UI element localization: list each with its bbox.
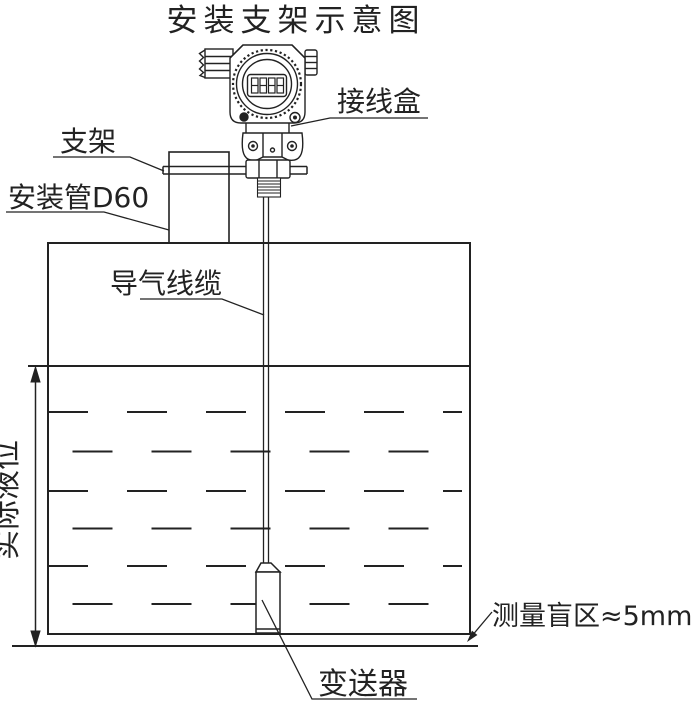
installation-diagram: 安装支架示意图 接线盒 支架 安装管D60 导气线缆 实际液位 测量盲区≈5mm… — [0, 0, 700, 708]
cable-gland-icon — [200, 49, 234, 78]
head-neck — [246, 123, 289, 133]
leader-bracket — [53, 157, 164, 171]
lcd-display-icon — [248, 75, 287, 97]
process-flange — [242, 133, 303, 160]
diagram-title: 安装支架示意图 — [167, 3, 426, 39]
leader-mounting-pipe — [6, 212, 169, 230]
label-air-cable: 导气线缆 — [110, 267, 222, 300]
label-blind-zone: 测量盲区≈5mm — [492, 601, 692, 632]
label-bracket: 支架 — [60, 125, 116, 158]
label-mounting-pipe: 安装管D60 — [8, 181, 149, 214]
bolt-left-icon — [240, 113, 248, 121]
threaded-nipple — [258, 178, 281, 197]
probe-body — [256, 563, 280, 633]
mounting-pipe — [169, 152, 229, 243]
label-actual-level: 实际液位 — [0, 440, 24, 560]
diagram-canvas: 安装支架示意图 接线盒 支架 安装管D60 导气线缆 实际液位 测量盲区≈5mm… — [0, 0, 700, 708]
arrowhead-down-icon — [31, 631, 40, 646]
conduit-port-icon — [305, 50, 317, 75]
leader-junction-box — [291, 118, 428, 126]
label-transmitter: 变送器 — [318, 667, 408, 702]
level-dimension-arrow — [31, 367, 40, 646]
mounting-nut — [246, 160, 290, 178]
label-junction-box: 接线盒 — [337, 85, 421, 118]
arrowhead-up-icon — [31, 367, 40, 382]
